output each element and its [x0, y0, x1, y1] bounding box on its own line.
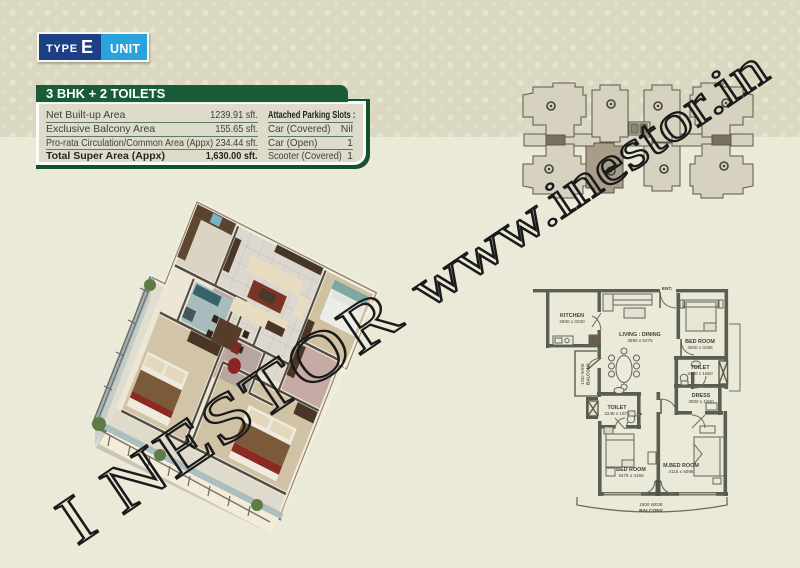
svg-text:2680 x 3330: 2680 x 3330 [559, 319, 585, 324]
svg-text:2400 x 1650: 2400 x 1650 [687, 371, 713, 376]
svg-text:1500 WIDE: 1500 WIDE [639, 502, 663, 507]
svg-text:4115 x 5095: 4115 x 5095 [669, 469, 694, 474]
svg-text:4590 x 6275: 4590 x 6275 [627, 338, 653, 343]
svg-text:1250 WIDE: 1250 WIDE [580, 363, 585, 385]
svg-text:BALCONY: BALCONY [639, 508, 664, 514]
svg-text:2245 x 1875: 2245 x 1875 [604, 411, 630, 416]
svg-text:ENT.: ENT. [662, 286, 672, 292]
svg-text:3475 x 4165: 3475 x 4165 [618, 473, 644, 478]
svg-text:3000 x 1500: 3000 x 1500 [688, 399, 714, 404]
svg-text:3000 x 3295: 3000 x 3295 [687, 345, 713, 350]
svg-text:BALCONY: BALCONY [586, 363, 591, 385]
